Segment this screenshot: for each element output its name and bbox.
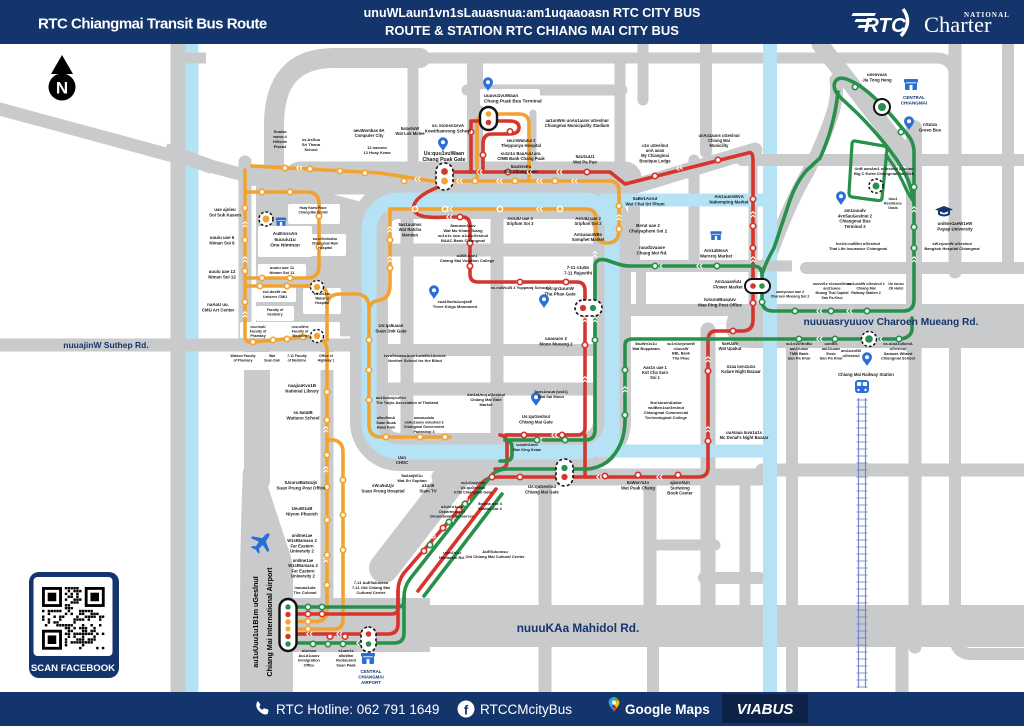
svg-text:s1uen1sa5uWanRestaurantSuan Pa: s1uen1sa5uWanRestaurantSuan Paak [336, 649, 357, 667]
svg-text:Google Maps: Google Maps [625, 702, 710, 717]
svg-text:Am1aunsWvANakomping Market: Am1aunsWvANakomping Market [709, 194, 749, 204]
svg-text:5oama uae 4Wualai Soi 4: 5oama uae 4Wualai Soi 4 [478, 501, 503, 511]
svg-text:Us:qa5uaanSuan Dok Gate: Us:qa5uaanSuan Dok Gate [375, 323, 407, 333]
svg-text:ajsovAUnSuriwongBook Center: ajsovAUnSuriwongBook Center [667, 480, 693, 496]
svg-text:AsruIU uae 3Sripfum Soi 3: AsruIU uae 3Sripfum Soi 3 [507, 216, 535, 226]
svg-text:VIABUS: VIABUS [737, 701, 794, 718]
svg-text:au1unWm unAu1auns uGeslnuIChia: au1unWm unAu1auns uGeslnuIChiangmai Muni… [545, 118, 610, 128]
svg-text:u1s uGeslnuIunA aoanMy Chiangm: u1s uGeslnuIunA aoanMy ChiangmaiBoutique… [639, 143, 671, 163]
svg-text:Chiang Mai Railway Station: Chiang Mai Railway Station [838, 372, 894, 377]
svg-text:a1un5Siam TV: a1un5Siam TV [419, 483, 436, 493]
svg-text:IUsuruIBuauUvMae Ping Post Off: IUsuruIBuauUvMae Ping Post Office [698, 297, 742, 307]
svg-text:IsvuSeuaeuAum1ueaMn1AunuIeNort: IsvuSeuaeuAum1ueaMn1AunuIeNorther School… [384, 353, 447, 363]
svg-text:nuud1vuaoeChang Moi Rd.: nuud1vuaoeChang Moi Rd. [637, 245, 668, 255]
svg-text:SCAN FACEBOOK: SCAN FACEBOOK [31, 663, 115, 674]
svg-text:Us:quGeslnuIChiang Mai Gate: Us:quGeslnuIChiang Mai Gate [519, 414, 553, 424]
svg-text:uuuiu uae 12Niman Soi 12: uuuiu uae 12Niman Soi 12 [208, 269, 236, 279]
svg-text:Un IonsuZK Hotel: Un IonsuZK Hotel [888, 282, 903, 291]
svg-text:sw.uni1suMaharajHospital: sw.uni1suMaharajHospital [314, 292, 331, 305]
svg-text:nuuuasryuuov Charoen Mueang Rd: nuuuasryuuov Charoen Mueang Rd. [804, 317, 979, 328]
svg-text:7-11 s1u5n7-11 Rajavithi: 7-11 s1u5n7-11 Rajavithi [564, 265, 592, 275]
svg-text:n1aa Iuvu1u1sKalare Night Baza: n1aa Iuvu1u1sKalare Night Bazaar [721, 364, 761, 374]
svg-text:Chiang Mai International Airpo: Chiang Mai International Airport [265, 567, 274, 677]
svg-text:Faculty ofDentistry: Faculty ofDentistry [267, 308, 284, 317]
svg-text:RTC Chiangmai Transit Bus Rout: RTC Chiangmai Transit Bus Route [38, 16, 267, 33]
svg-text:euLdosW uu.Uniserv CMU: euLdosW uu.Uniserv CMU [263, 289, 288, 299]
svg-text:nou:inaUFaculty ofPhamacy: nou:inaUFaculty ofPhamacy [250, 325, 267, 338]
svg-text:7-11 AuE5uIuossu7-11 Old Chian: 7-11 AuE5uIuossu7-11 Old Chiang MaiCultu… [352, 580, 390, 595]
svg-text:Charter: Charter [924, 12, 992, 37]
svg-text:uuuiu uae 6Niman Soi 6: uuuiu uae 6Niman Soi 6 [209, 235, 235, 245]
svg-text:uasryuuov uae 2Charoen Mueang: uasryuuov uae 2Charoen Mueang Soi 2 [771, 290, 810, 299]
svg-text:uuAIaua Iuvu1u1sMc Donal's Nig: uuAIaua Iuvu1u1sMc Donal's Night Bazaar [720, 430, 769, 440]
svg-text:Us:quu1vuWaanChang Puak Gate: Us:quu1vuWaanChang Puak Gate [423, 151, 466, 163]
svg-text:ROUTE & STATION RTC CHIANG MAI: ROUTE & STATION RTC CHIANG MAI CITY BUS [385, 23, 679, 38]
svg-text:inauna1uIaThe Colonal: inauna1uIaThe Colonal [294, 585, 317, 595]
svg-text:a5uu5nnASuan BuakHaad Park: a5uu5nnASuan BuakHaad Park [376, 416, 397, 430]
svg-text:AsruIU uae 2Sripfum Soi 2: AsruIU uae 2Sripfum Soi 2 [575, 216, 603, 226]
svg-text:f: f [464, 703, 469, 718]
svg-text:RTC: RTC [864, 14, 907, 37]
svg-text:5ne1aeuinAIuIaewuIBen1suGeslnu: 5ne1aeuinAIuIaewuIBen1suGeslnuIChiangmai… [644, 400, 688, 420]
svg-text:IneUs:nuB5m uGeslnuIThai Life: IneUs:nuB5m uGeslnuIThai Life Insurance … [829, 241, 887, 251]
svg-text:CENTRALCHIANGMAI: CENTRALCHIANGMAI [901, 95, 928, 106]
svg-text:7-11 Facultyof Medicine: 7-11 Facultyof Medicine [287, 354, 307, 362]
svg-text:Us:qn1uunWTha Phae Gate: Us:qn1uunWTha Phae Gate [544, 286, 576, 297]
svg-text:nuuajinW Suthep Rd.: nuuajinW Suthep Rd. [63, 340, 148, 350]
svg-text:aeuWombas 8AComputer City: aeuWombas 8AComputer City [353, 128, 384, 138]
svg-text:au1uUuu1u1B1m uGeslnuI: au1uUuu1u1B1m uGeslnuI [251, 576, 260, 667]
svg-text:AuEnnsAn5uuuiu1uOne Nimman: AuEnnsAn5uuuiu1uOne Nimman [270, 231, 300, 249]
svg-text:nou:uWneFaculty ofMedicine: nou:uWneFaculty ofMedicine [291, 325, 309, 338]
svg-text:Am1a5IssAWaroroj Market: Am1a5IssAWaroroj Market [700, 248, 733, 259]
svg-text:unuWLaun1vn1sLauasnua:am1uqaao: unuWLaun1vn1sLauasnua:am1uqaaoasn RTC CI… [364, 6, 701, 20]
svg-text:Huay Kaew PlaceChiang Mai Orch: Huay Kaew PlaceChiang Mai Orchid [298, 206, 327, 214]
svg-text:ss.euWs1B 2 Yupparaj School 2: ss.euWs1B 2 Yupparaj School 2 [491, 285, 552, 290]
svg-text:sW.njvunW uGeslnuIBangkok Hosp: sW.njvunW uGeslnuIBangkok Hospital Chian… [924, 241, 979, 251]
svg-text:5ans1euua (wuI1)Wat Sai Moon: 5ans1euua (wuI1)Wat Sai Moon [534, 389, 568, 399]
svg-text:sw.inWuIuIuI 2Theppunya Hospit: sw.inWuIuIuI 2Theppunya Hospital [501, 138, 541, 148]
svg-text:uusuIn1unoBan King Keaw: uusuIn1unoBan King Keaw [513, 443, 541, 452]
svg-text:RTCCMcityBus: RTCCMcityBus [480, 702, 572, 717]
svg-text:ss.a1sa1u5uinAuGeslnuISarasas: ss.a1sa1u5uinAuGeslnuISarasas WitaedChia… [881, 341, 915, 361]
svg-text:eua15seIa1un)asEThree Kings Mo: eua15seIa1un)asEThree Kings Monument [433, 299, 478, 309]
svg-text:uuuiu uae 11Niman Soi 11: uuuiu uae 11Niman Soi 11 [270, 265, 296, 275]
svg-text:SnaIsawans:4HillsidePlaza4: SnaIsawans:4HillsidePlaza4 [272, 129, 288, 149]
svg-text:su1n1s BauAuU am.CIMB Bank Cha: su1n1s BauAuU am.CIMB Bank Chang Puak [497, 151, 545, 161]
svg-text:nuuuKAa Mahidol Rd.: nuuuKAa Mahidol Rd. [517, 621, 640, 635]
svg-text:CENTRALCHIANGMAIAIRPORT: CENTRALCHIANGMAIAIRPORT [358, 669, 383, 685]
svg-text:Us:quGeslnuIChiang Mai Gate: Us:quGeslnuIChiang Mai Gate [525, 484, 559, 494]
svg-text:uni5ne1aeW1eWPayap University: uni5ne1aeW1eWPayap University [937, 221, 973, 231]
svg-text:N: N [56, 79, 68, 98]
svg-text:am1usnIWuGeslnuI: am1usnIWuGeslnuI [841, 348, 861, 358]
svg-text:Watson Facultyof Phamacy: Watson Facultyof Phamacy [231, 354, 256, 362]
svg-text:5auWn1s1uWat Bupparam: 5auWn1s1uWat Bupparam [632, 341, 660, 351]
svg-text:Am1aaanluUFlower Market: Am1aaanluUFlower Market [713, 279, 743, 289]
svg-text:Am1aauuWBsSomphet Market: Am1aauuWBsSomphet Market [572, 232, 605, 242]
svg-text:5aU1uU1Wat Pa Pao: 5aU1uU1Wat Pa Pao [573, 154, 597, 164]
svg-text:UnB uanAm1 uGeslnuI A1uuanBig: UnB uanAm1 uGeslnuI A1uuanBig C Extra Ch… [854, 166, 915, 176]
svg-text:naajuuKvu1BNational Library: naajuuKvu1BNational Library [285, 383, 319, 393]
svg-text:RTC Hotline: 062 791 1649: RTC Hotline: 062 791 1649 [276, 702, 439, 717]
svg-text:Office ofHighway 1: Office ofHighway 1 [318, 354, 335, 362]
